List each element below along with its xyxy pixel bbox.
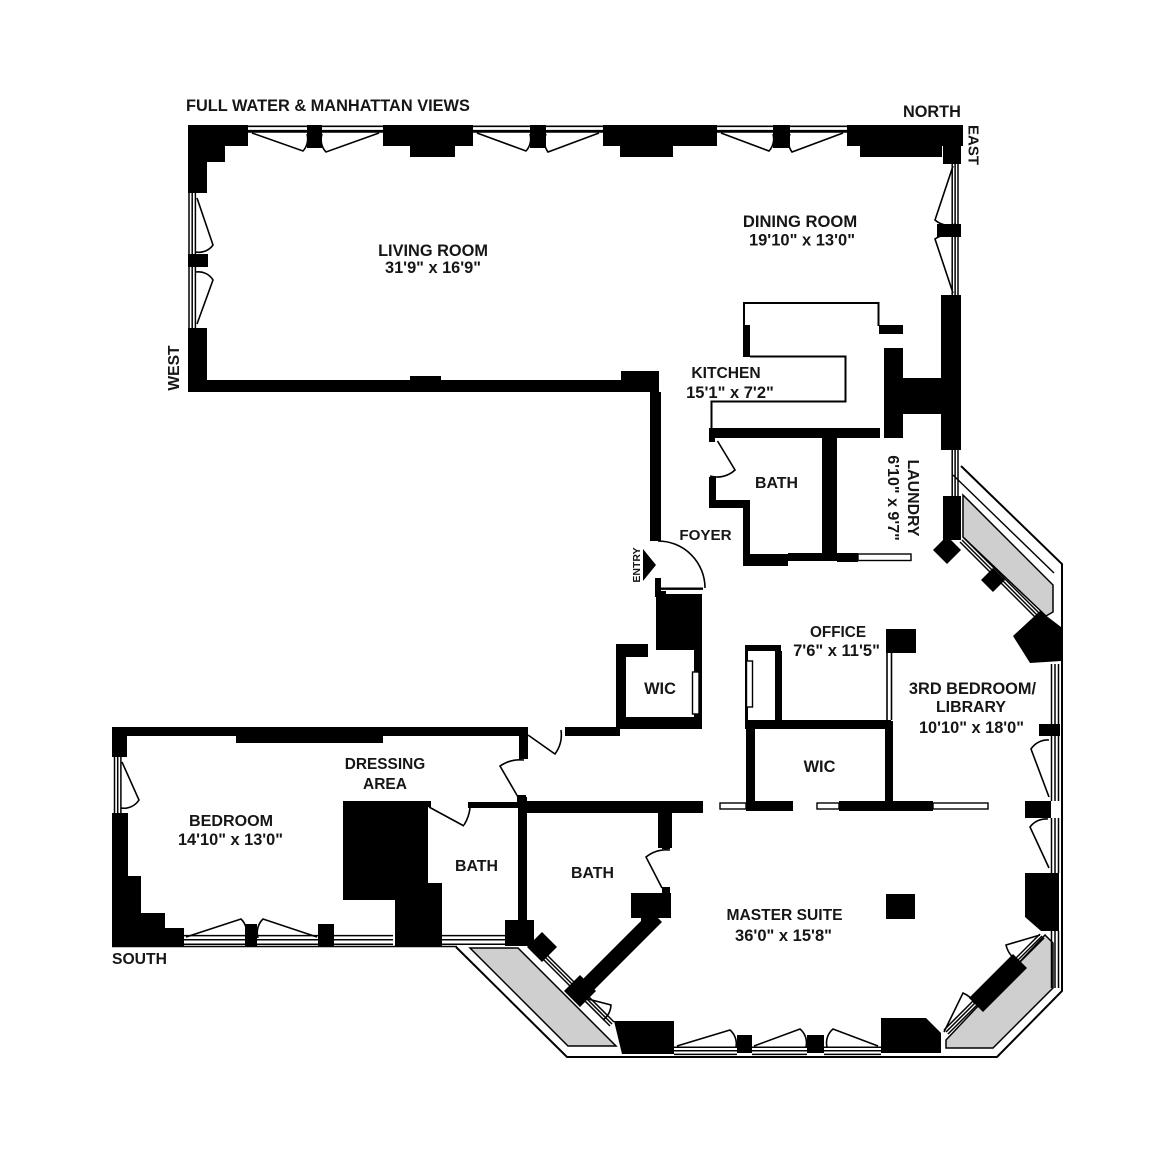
- svg-text:3RD BEDROOM/: 3RD BEDROOM/: [909, 680, 1037, 698]
- svg-text:36'0" x 15'8": 36'0" x 15'8": [735, 927, 832, 945]
- svg-text:6'10" x 9'7": 6'10" x 9'7": [884, 455, 902, 541]
- svg-text:LIVING ROOM: LIVING ROOM: [378, 242, 488, 260]
- svg-text:BATH: BATH: [755, 475, 798, 492]
- svg-text:7'6" x 11'5": 7'6" x 11'5": [793, 642, 880, 660]
- svg-text:BATH: BATH: [455, 858, 498, 875]
- svg-text:NORTH: NORTH: [903, 103, 961, 121]
- svg-text:KITCHEN: KITCHEN: [691, 365, 760, 382]
- svg-text:15'1" x 7'2": 15'1" x 7'2": [686, 384, 774, 402]
- svg-text:19'10" x 13'0": 19'10" x 13'0": [749, 232, 855, 250]
- svg-text:DRESSING: DRESSING: [345, 756, 425, 773]
- svg-text:SOUTH: SOUTH: [112, 951, 167, 968]
- svg-text:MASTER SUITE: MASTER SUITE: [726, 907, 842, 924]
- svg-text:14'10" x 13'0": 14'10" x 13'0": [178, 831, 283, 849]
- svg-text:DINING ROOM: DINING ROOM: [743, 212, 857, 231]
- svg-text:ENTRY: ENTRY: [631, 547, 643, 582]
- svg-text:WIC: WIC: [644, 680, 676, 698]
- svg-text:EAST: EAST: [965, 125, 982, 165]
- svg-text:31'9" x 16'9": 31'9" x 16'9": [385, 259, 481, 277]
- svg-text:AREA: AREA: [363, 776, 407, 793]
- svg-text:BATH: BATH: [571, 865, 614, 882]
- svg-text:FOYER: FOYER: [679, 527, 731, 544]
- svg-text:LAUNDRY: LAUNDRY: [904, 459, 921, 536]
- svg-text:BEDROOM: BEDROOM: [189, 812, 273, 830]
- svg-text:FULL WATER & MANHATTAN VIEWS: FULL WATER & MANHATTAN VIEWS: [186, 97, 470, 115]
- svg-text:WIC: WIC: [804, 758, 836, 776]
- svg-text:WEST: WEST: [166, 345, 183, 391]
- svg-text:LIBRARY: LIBRARY: [936, 699, 1006, 716]
- svg-text:10'10" x 18'0": 10'10" x 18'0": [919, 719, 1024, 737]
- svg-text:OFFICE: OFFICE: [810, 624, 866, 641]
